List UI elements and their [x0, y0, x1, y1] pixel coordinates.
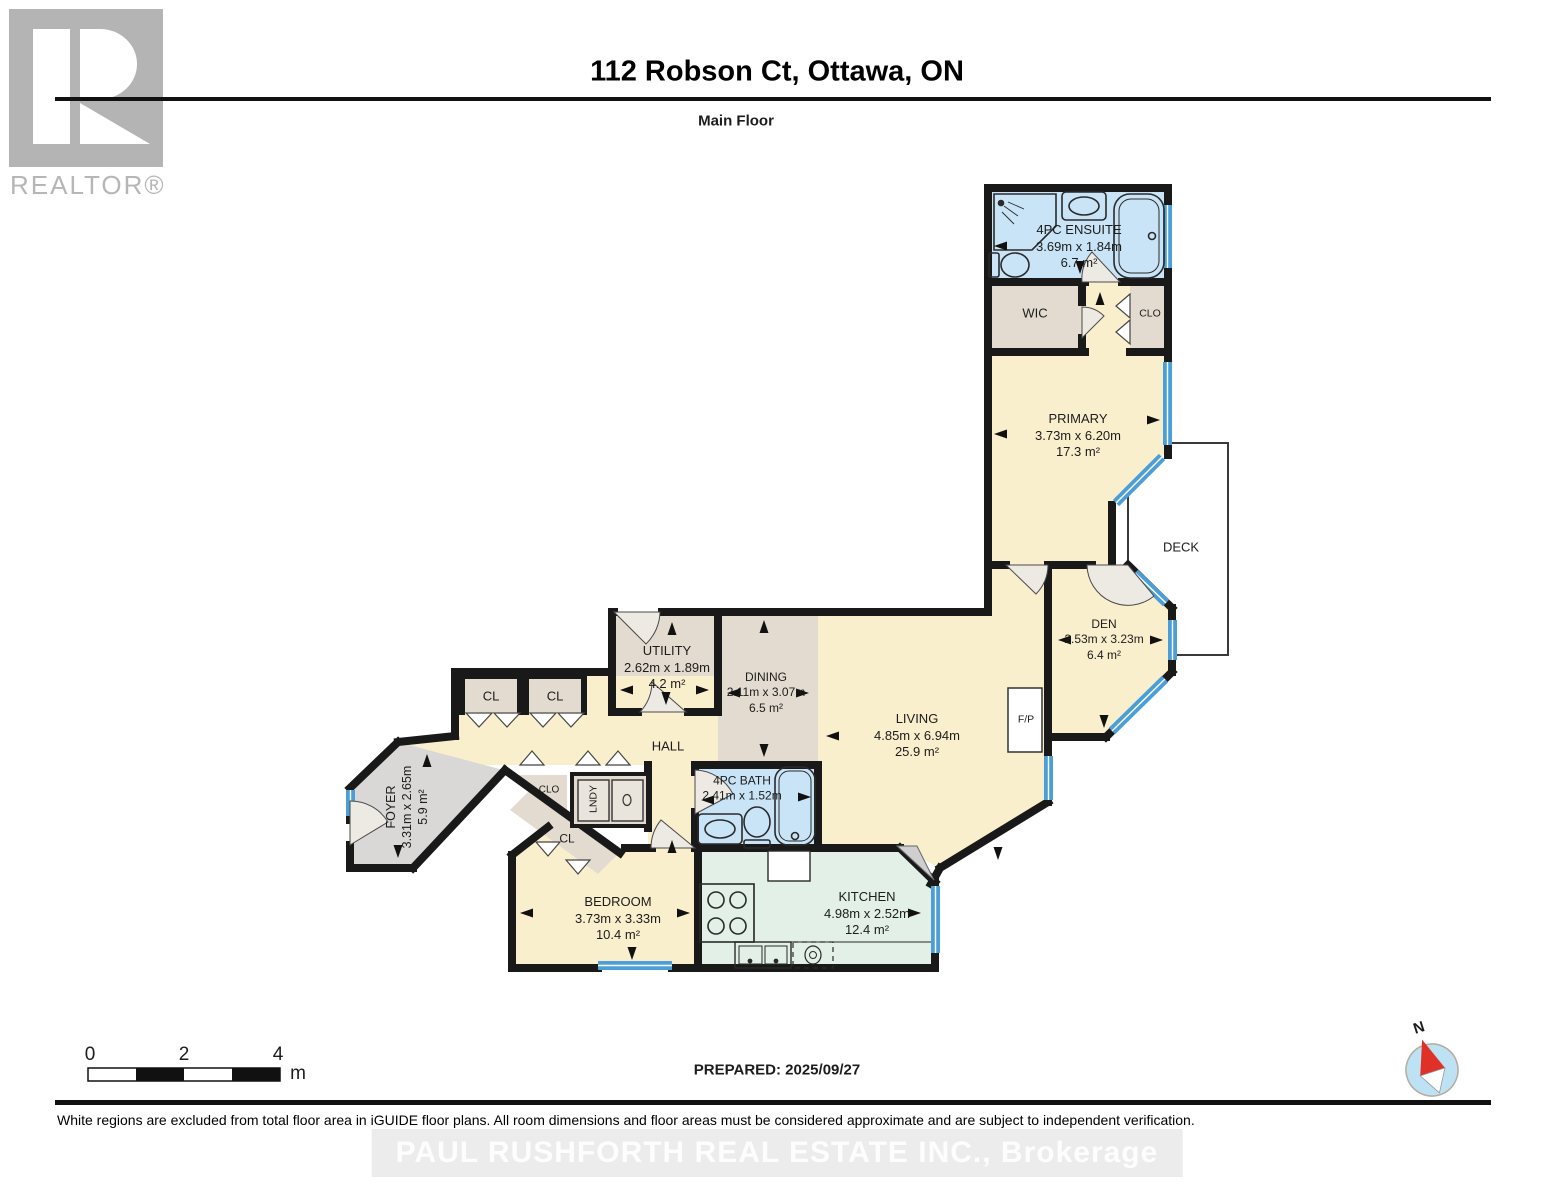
scale-unit: m	[290, 1062, 306, 1086]
scale-tick-0: 0	[85, 1043, 96, 1067]
floor-name: Main Floor	[698, 111, 774, 130]
scale-bar	[88, 1068, 280, 1081]
room-label-clo-hall: CLO	[539, 785, 560, 798]
floor-plan-page: 112 Robson Ct, Ottawa, ON Main Floor REA…	[0, 0, 1553, 1200]
room-label-laundry: LNDY	[587, 785, 600, 813]
room-label-kitchen: KITCHEN 4.98m x 2.52m 12.4 m²	[824, 889, 910, 939]
laundry-appliances	[572, 774, 648, 826]
room-label-clo-primary: CLO	[1139, 307, 1161, 320]
footer-rule	[55, 1100, 1491, 1105]
scale-tick-2: 2	[179, 1043, 190, 1067]
realtor-logo-text: REALTOR®	[10, 170, 166, 201]
disclaimer-text: White regions are excluded from total fl…	[57, 1112, 1195, 1128]
room-label-cl-1: CL	[483, 689, 500, 706]
room-label-den: DEN 2.53m x 3.23m 6.4 m²	[1064, 617, 1143, 663]
room-label-fireplace: F/P	[1018, 713, 1034, 726]
room-label-foyer: FOYER 3.31m x 2.65m 5.9 m²	[383, 766, 431, 849]
room-label-cl-2: CL	[547, 689, 564, 706]
floor-plan-graphic	[0, 0, 1553, 1200]
room-label-dining: DINING 2.11m x 3.07m 6.5 m²	[727, 670, 805, 716]
room-label-cl-bedroom: CL	[559, 831, 574, 846]
compass-icon	[1397, 1032, 1464, 1103]
room-label-primary: PRIMARY 3.73m x 6.20m 17.3 m²	[1035, 411, 1121, 461]
realtor-logo-icon	[9, 9, 163, 167]
prepared-date: PREPARED: 2025/09/27	[694, 1060, 860, 1079]
room-label-bedroom: BEDROOM 3.73m x 3.33m 10.4 m²	[575, 894, 661, 944]
scale-tick-4: 4	[273, 1043, 284, 1067]
room-label-utility: UTILITY 2.62m x 1.89m 4.2 m²	[624, 643, 710, 693]
header-rule	[55, 97, 1491, 101]
room-label-ensuite: 4PC ENSUITE 3.69m x 1.84m 6.7 m²	[1036, 222, 1122, 272]
room-label-hall: HALL	[652, 739, 685, 756]
room-label-bath: 4PC BATH 2.41m x 1.52m	[702, 774, 781, 805]
page-title: 112 Robson Ct, Ottawa, ON	[590, 53, 964, 90]
room-label-living: LIVING 4.85m x 6.94m 25.9 m²	[874, 711, 960, 761]
room-label-wic: WIC	[1022, 306, 1047, 323]
brokerage-watermark: PAUL RUSHFORTH REAL ESTATE INC., Brokera…	[372, 1129, 1183, 1177]
room-label-deck: DECK	[1163, 540, 1199, 557]
